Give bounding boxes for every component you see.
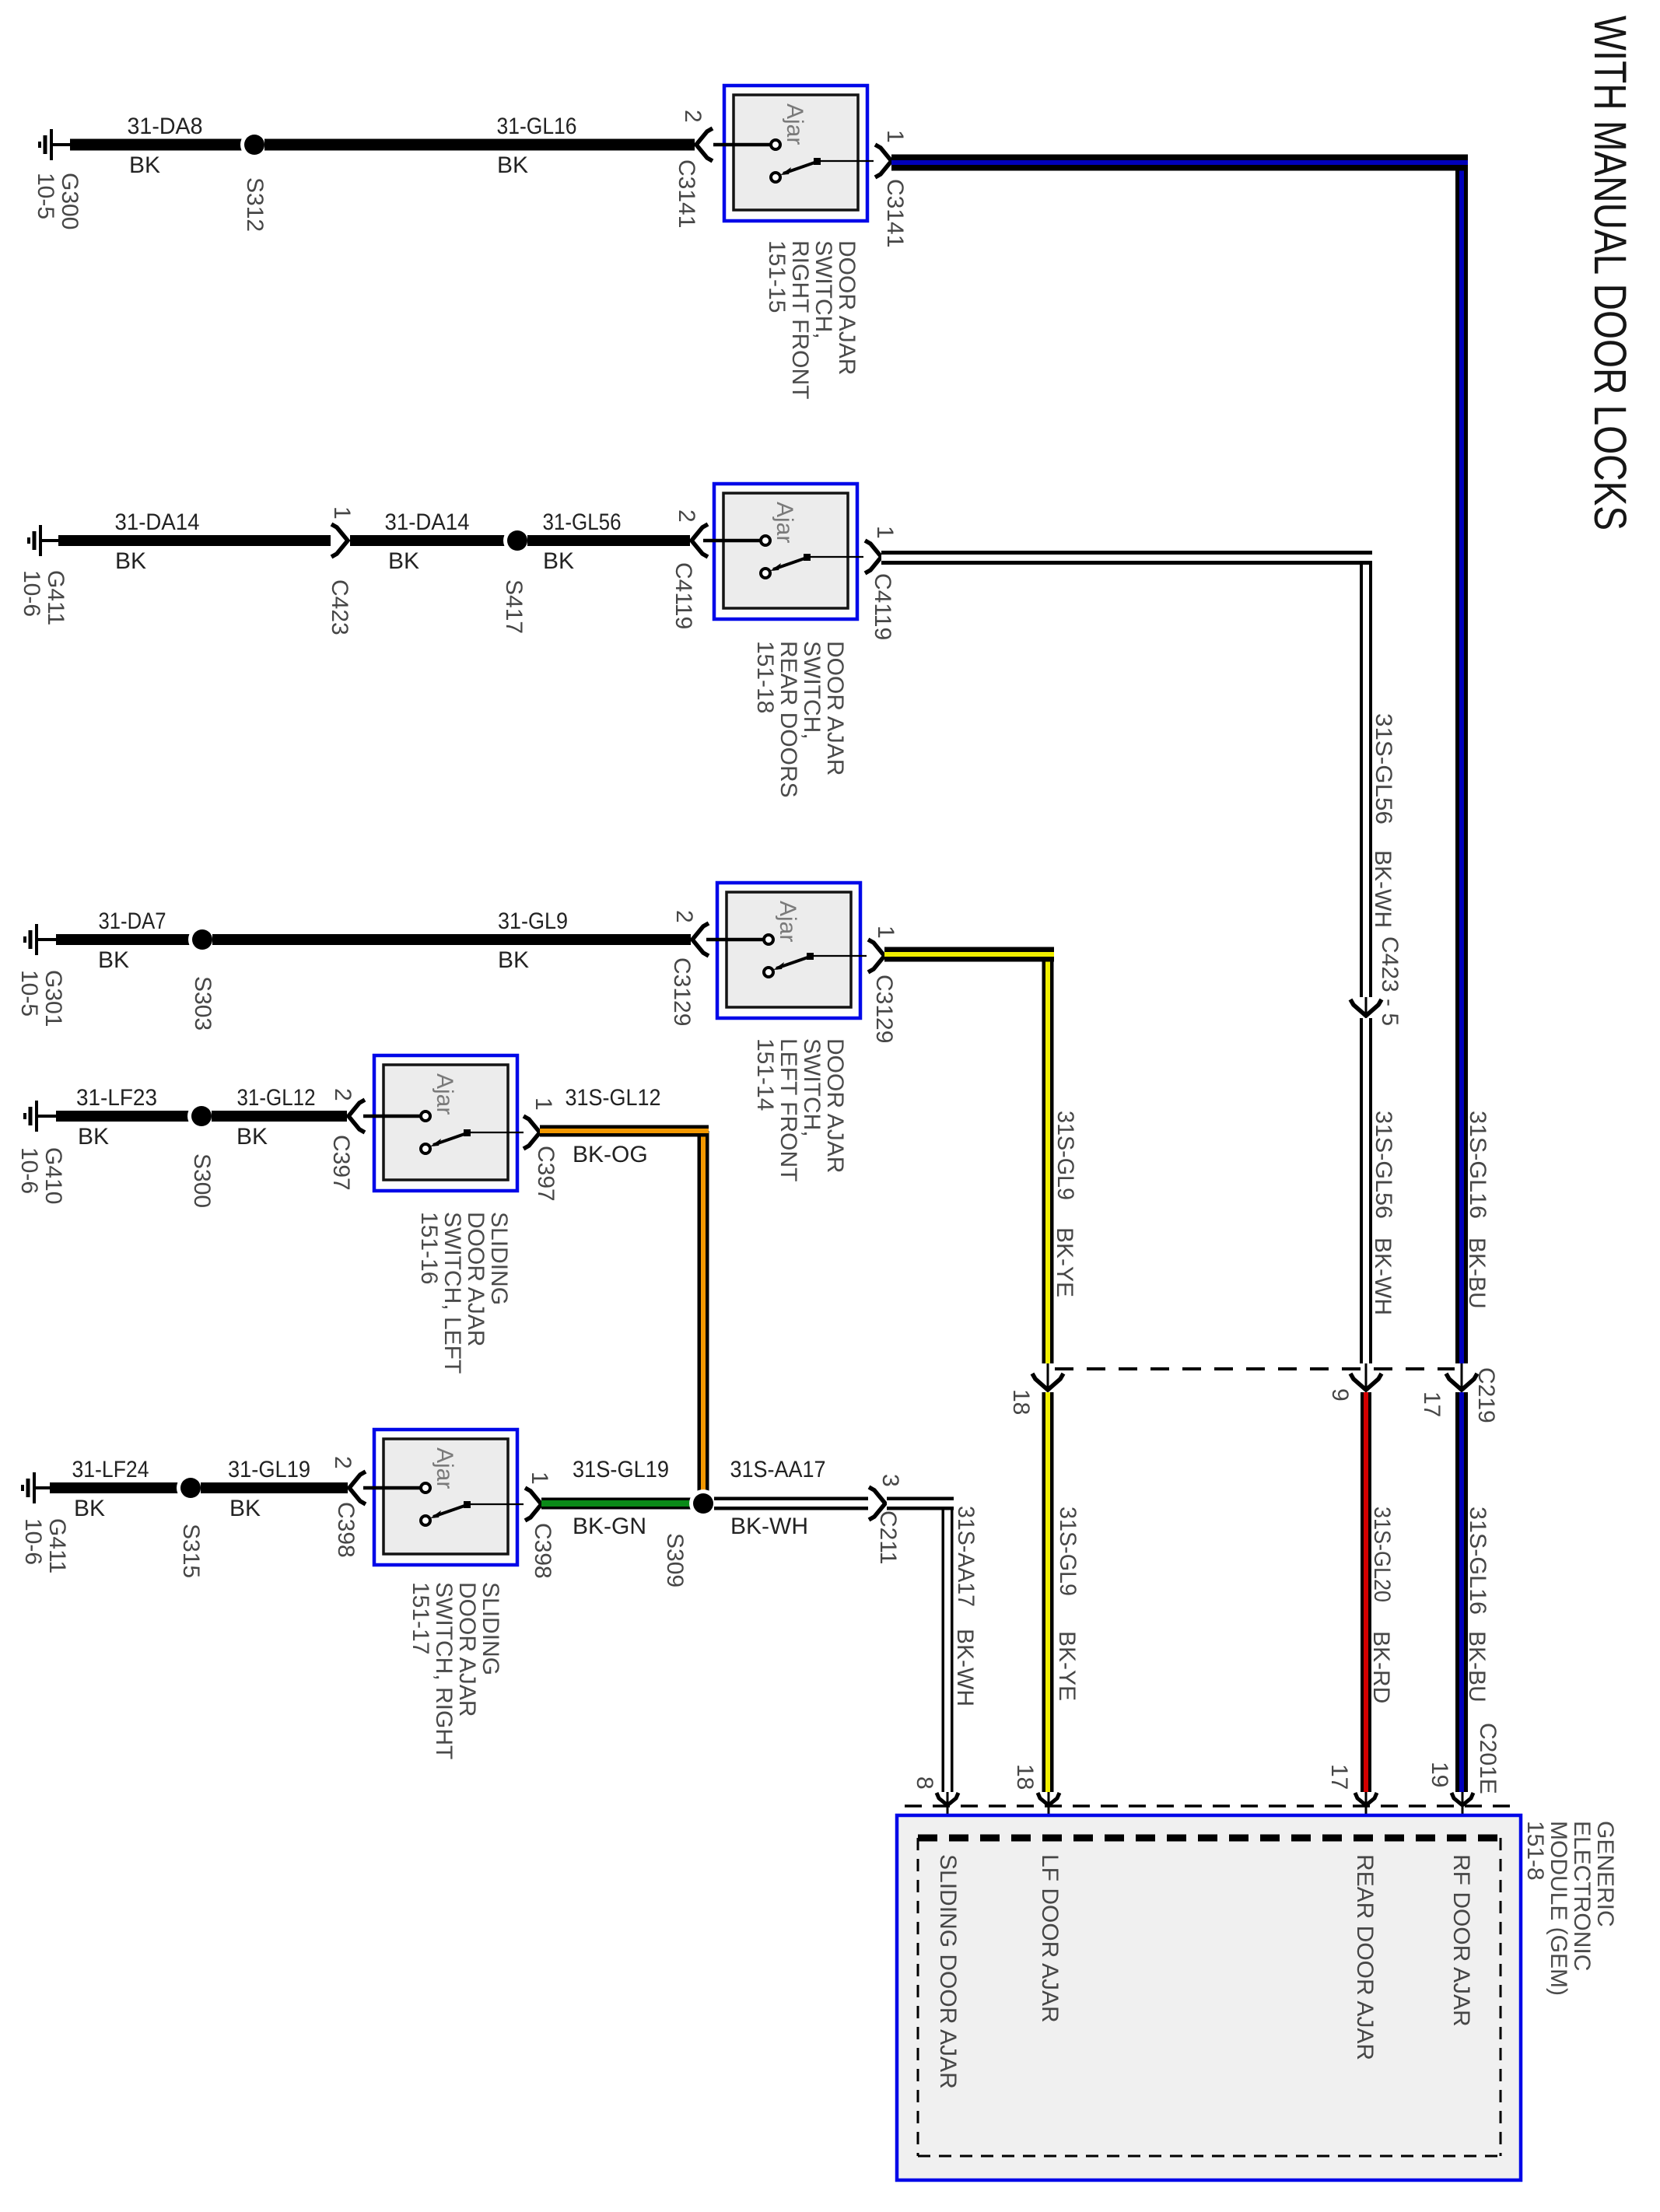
svg-text:1: 1 <box>882 130 908 143</box>
svg-text:S417: S417 <box>501 579 527 634</box>
svg-text:BK-WH: BK-WH <box>730 1514 808 1539</box>
svg-text:BK: BK <box>229 1496 261 1521</box>
svg-text:C3141: C3141 <box>674 159 699 228</box>
svg-text:C423: C423 <box>327 579 352 635</box>
svg-text:C3129: C3129 <box>871 975 897 1043</box>
svg-text:DOOR AJAR: DOOR AJAR <box>463 1212 489 1346</box>
svg-text:10-5: 10-5 <box>33 173 58 219</box>
svg-text:1: 1 <box>531 1097 556 1111</box>
svg-text:G411: G411 <box>43 570 68 625</box>
svg-text:BK-RD: BK-RD <box>1368 1631 1394 1703</box>
svg-text:151-15: 151-15 <box>764 240 790 313</box>
svg-text:SWITCH, RIGHT: SWITCH, RIGHT <box>431 1582 457 1759</box>
svg-text:C397: C397 <box>328 1135 354 1191</box>
svg-text:2: 2 <box>680 110 706 123</box>
svg-text:Ajar: Ajar <box>775 901 800 942</box>
svg-text:C3129: C3129 <box>669 957 695 1026</box>
svg-text:BK: BK <box>236 1124 268 1150</box>
svg-text:LEFT FRONT: LEFT FRONT <box>776 1038 801 1181</box>
svg-text:BK: BK <box>543 548 574 574</box>
svg-text:BK-GN: BK-GN <box>573 1514 646 1539</box>
svg-text:DOOR AJAR: DOOR AJAR <box>834 240 860 375</box>
svg-text:REAR DOORS: REAR DOORS <box>776 641 801 798</box>
svg-text:BK: BK <box>78 1124 109 1150</box>
svg-text:Ajar: Ajar <box>782 103 807 145</box>
svg-text:31-GL9: 31-GL9 <box>498 908 568 934</box>
svg-text:BK: BK <box>129 152 160 178</box>
svg-text:10-6: 10-6 <box>20 1518 46 1565</box>
svg-text:2: 2 <box>671 910 697 923</box>
svg-text:18: 18 <box>1008 1389 1034 1415</box>
svg-text:31S-GL16: 31S-GL16 <box>1465 1507 1490 1615</box>
svg-text:C219: C219 <box>1473 1367 1499 1423</box>
svg-text:BK: BK <box>497 152 528 178</box>
svg-text:BK-YE: BK-YE <box>1052 1227 1077 1297</box>
svg-text:31S-GL12: 31S-GL12 <box>566 1085 661 1111</box>
svg-text:31-DA14: 31-DA14 <box>385 509 470 535</box>
svg-text:BK: BK <box>498 947 529 973</box>
svg-text:G411: G411 <box>44 1518 70 1573</box>
svg-text:SWITCH,: SWITCH, <box>811 240 836 339</box>
svg-text:RIGHT FRONT: RIGHT FRONT <box>787 240 813 399</box>
svg-text:DOOR AJAR: DOOR AJAR <box>454 1582 480 1717</box>
svg-text:C423 - 5: C423 - 5 <box>1377 936 1403 1026</box>
svg-text:GENERIC: GENERIC <box>1592 1821 1618 1927</box>
svg-text:BK-WH: BK-WH <box>952 1629 978 1706</box>
svg-text:C397: C397 <box>533 1146 559 1202</box>
svg-text:BK-BU: BK-BU <box>1464 1237 1490 1309</box>
svg-text:SWITCH, LEFT: SWITCH, LEFT <box>440 1212 465 1374</box>
svg-text:31S-AA17: 31S-AA17 <box>730 1457 826 1482</box>
svg-text:1: 1 <box>329 506 355 520</box>
svg-text:31S-GL16: 31S-GL16 <box>1465 1111 1490 1219</box>
svg-text:G410: G410 <box>40 1147 66 1204</box>
svg-text:8: 8 <box>912 1776 937 1790</box>
svg-text:151-16: 151-16 <box>416 1212 442 1284</box>
svg-text:G300: G300 <box>57 173 82 229</box>
svg-text:31-GL12: 31-GL12 <box>237 1085 316 1111</box>
svg-text:C3141: C3141 <box>882 179 908 247</box>
svg-text:C4119: C4119 <box>671 562 696 629</box>
svg-text:BK-OG: BK-OG <box>573 1142 648 1167</box>
svg-text:151-8: 151-8 <box>1522 1821 1548 1881</box>
svg-text:C398: C398 <box>530 1523 555 1579</box>
svg-text:BK: BK <box>74 1496 105 1521</box>
svg-text:31-GL16: 31-GL16 <box>497 114 577 139</box>
svg-text:C398: C398 <box>333 1502 359 1558</box>
svg-text:Ajar: Ajar <box>772 502 797 543</box>
svg-text:DOOR AJAR: DOOR AJAR <box>822 1038 848 1173</box>
svg-text:S303: S303 <box>190 976 215 1031</box>
svg-text:31-GL56: 31-GL56 <box>543 509 622 535</box>
svg-text:S309: S309 <box>662 1533 688 1587</box>
svg-text:WITH MANUAL DOOR LOCKS: WITH MANUAL DOOR LOCKS <box>1585 16 1635 530</box>
svg-text:BK-WH: BK-WH <box>1370 1237 1396 1315</box>
svg-text:G301: G301 <box>40 970 66 1027</box>
svg-text:LF DOOR AJAR: LF DOOR AJAR <box>1037 1854 1063 2023</box>
svg-text:S312: S312 <box>242 177 268 232</box>
svg-text:BK: BK <box>98 947 129 973</box>
svg-text:31S-GL56: 31S-GL56 <box>1371 713 1396 824</box>
svg-text:C4119: C4119 <box>870 573 895 640</box>
svg-text:151-17: 151-17 <box>408 1582 433 1654</box>
svg-text:31-DA8: 31-DA8 <box>128 114 203 139</box>
svg-text:151-14: 151-14 <box>752 1038 778 1111</box>
svg-text:Ajar: Ajar <box>432 1447 457 1489</box>
svg-text:31S-GL9: 31S-GL9 <box>1055 1507 1080 1596</box>
svg-text:31-DA7: 31-DA7 <box>99 908 166 934</box>
svg-text:SWITCH,: SWITCH, <box>799 641 825 740</box>
svg-text:SWITCH,: SWITCH, <box>799 1038 825 1137</box>
svg-text:BK: BK <box>388 548 419 574</box>
svg-text:31S-GL20: 31S-GL20 <box>1369 1507 1395 1602</box>
svg-text:10-6: 10-6 <box>19 570 44 617</box>
svg-text:BK-BU: BK-BU <box>1464 1631 1490 1703</box>
svg-text:SLIDING: SLIDING <box>486 1212 512 1305</box>
svg-text:RF DOOR AJAR: RF DOOR AJAR <box>1448 1854 1474 2027</box>
svg-text:BK-WH: BK-WH <box>1370 850 1396 928</box>
svg-text:BK-YE: BK-YE <box>1054 1631 1080 1701</box>
svg-text:31S-AA17: 31S-AA17 <box>953 1506 979 1607</box>
svg-text:SLIDING DOOR AJAR: SLIDING DOOR AJAR <box>935 1854 961 2089</box>
svg-text:S300: S300 <box>189 1153 215 1208</box>
svg-text:18: 18 <box>1012 1764 1038 1790</box>
svg-text:DOOR AJAR: DOOR AJAR <box>822 641 848 775</box>
svg-text:17: 17 <box>1419 1391 1445 1417</box>
svg-text:10-5: 10-5 <box>16 970 42 1017</box>
svg-text:1: 1 <box>872 526 898 539</box>
svg-text:31S-GL56: 31S-GL56 <box>1371 1111 1396 1219</box>
svg-text:151-18: 151-18 <box>752 641 778 713</box>
svg-text:BK: BK <box>115 548 146 574</box>
svg-text:17: 17 <box>1326 1764 1352 1790</box>
svg-text:SLIDING: SLIDING <box>478 1582 503 1675</box>
svg-text:Ajar: Ajar <box>432 1073 457 1115</box>
svg-text:10-6: 10-6 <box>16 1147 42 1194</box>
svg-text:31S-GL9: 31S-GL9 <box>1052 1111 1078 1200</box>
svg-text:3: 3 <box>877 1474 903 1487</box>
svg-text:9: 9 <box>1327 1388 1353 1402</box>
svg-text:31-DA14: 31-DA14 <box>115 509 200 535</box>
svg-text:31-LF23: 31-LF23 <box>76 1085 157 1111</box>
svg-text:31S-GL19: 31S-GL19 <box>573 1457 669 1482</box>
svg-text:31-LF24: 31-LF24 <box>72 1457 149 1482</box>
svg-text:REAR DOOR AJAR: REAR DOOR AJAR <box>1352 1854 1378 2060</box>
svg-text:2: 2 <box>330 1456 355 1469</box>
svg-text:C201E: C201E <box>1475 1723 1501 1794</box>
svg-text:1: 1 <box>873 926 898 939</box>
svg-text:MODULE (GEM): MODULE (GEM) <box>1546 1821 1571 1996</box>
svg-text:1: 1 <box>527 1472 552 1485</box>
svg-text:19: 19 <box>1427 1762 1452 1787</box>
svg-text:2: 2 <box>330 1088 355 1101</box>
svg-text:C211: C211 <box>875 1510 901 1565</box>
svg-text:S315: S315 <box>178 1524 204 1578</box>
svg-text:31-GL19: 31-GL19 <box>228 1457 310 1482</box>
svg-text:2: 2 <box>674 509 699 523</box>
svg-text:ELECTRONIC: ELECTRONIC <box>1569 1821 1595 1971</box>
